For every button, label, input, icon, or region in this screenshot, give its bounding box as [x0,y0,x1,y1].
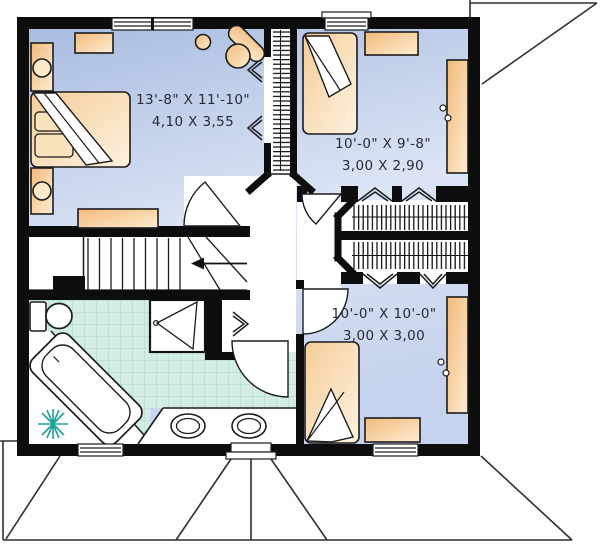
sink-icon [232,414,266,438]
nightstand-icon [31,168,53,214]
knob-icon [438,359,444,365]
vanity-counter [138,408,296,444]
knob-icon [443,370,449,376]
bedroom2-dimensions-imperial: 10'-0" X 9'-8" [298,136,468,152]
master-bedroom-dimensions-imperial: 13'-8" X 11'-10" [108,92,278,108]
window-dormer-bottom [226,443,276,459]
window-bedroom2-top [322,12,371,30]
bedroom3-dimensions-imperial: 10'-0" X 10'-0" [299,306,469,322]
dresser-icon [365,418,420,442]
toilet-icon [30,302,72,331]
bedroom3-dimensions-metric: 3,00 X 3,00 [299,328,469,344]
shower-icon [150,300,205,352]
sink-icon [171,414,205,438]
knob-icon [445,115,451,121]
plant-icon [38,409,68,439]
bed-icon [305,342,359,443]
window-bedroom3-bottom [373,444,418,456]
master-bedroom-dimensions-metric: 4,10 X 3,55 [108,114,278,130]
lamp-icon [33,59,51,77]
dresser-icon [78,209,158,228]
floor-plan-page: 13'-8" X 11'-10" 4,10 X 3,55 10'-0" X 9'… [0,0,600,544]
floor-plan-drawing [0,0,600,544]
nightstand-icon [31,43,53,91]
window-master-top [112,18,193,30]
bed-icon [303,33,357,134]
dresser-icon [75,33,113,53]
bedroom2-dimensions-metric: 3,00 X 2,90 [298,158,468,174]
stool-icon [196,35,211,50]
window-bathroom-bottom [78,444,123,456]
dresser-icon [365,32,418,55]
lamp-icon [33,182,51,200]
knob-icon [440,105,446,111]
